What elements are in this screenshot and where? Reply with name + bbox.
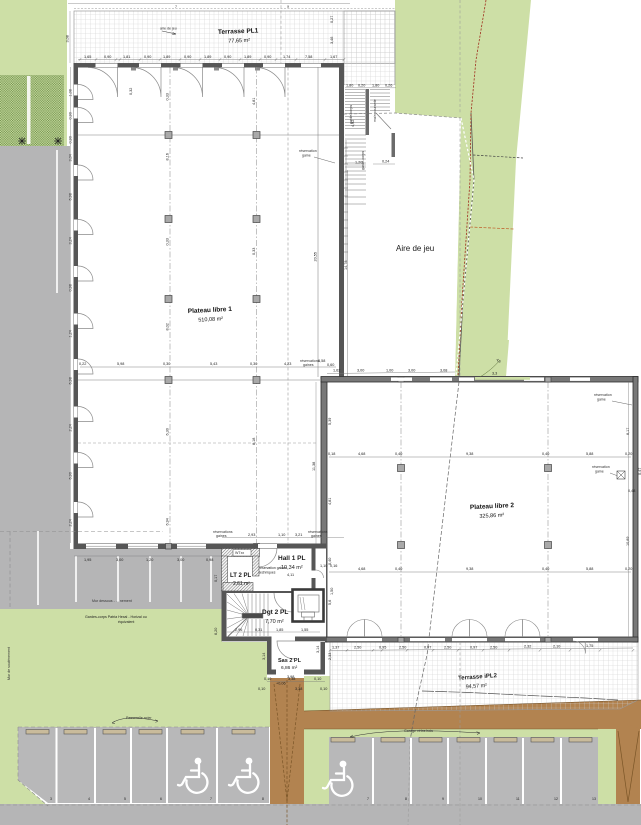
svg-text:4,81: 4,81	[328, 498, 332, 505]
svg-text:0,24: 0,24	[382, 160, 389, 164]
svg-text:0,60: 0,60	[327, 363, 334, 367]
svg-text:3,08: 3,08	[440, 369, 447, 373]
svg-text:0,90: 0,90	[104, 55, 111, 59]
svg-text:Mur dessous - ... nement: Mur dessous - ... nement	[92, 599, 132, 603]
svg-text:3: 3	[50, 797, 52, 801]
svg-text:0,90: 0,90	[184, 55, 191, 59]
svg-text:1,10: 1,10	[320, 564, 327, 568]
svg-text:0,40: 0,40	[542, 567, 549, 571]
svg-text:0,40: 0,40	[395, 452, 402, 456]
svg-text:13: 13	[592, 797, 596, 801]
svg-text:10: 10	[478, 797, 482, 801]
svg-text:3,3: 3,3	[492, 372, 497, 376]
svg-text:6,86 m²: 6,86 m²	[281, 665, 298, 671]
svg-text:2,50: 2,50	[399, 646, 406, 650]
svg-text:3,08: 3,08	[66, 35, 70, 42]
svg-text:11: 11	[516, 797, 520, 801]
svg-text:14,78: 14,78	[344, 260, 348, 270]
svg-text:5,43: 5,43	[210, 362, 217, 366]
svg-text:1,50: 1,50	[330, 588, 334, 595]
svg-text:0,97: 0,97	[424, 646, 431, 650]
svg-text:4,52: 4,52	[351, 120, 355, 127]
svg-text:0,98: 0,98	[206, 558, 213, 562]
svg-text:11,38: 11,38	[312, 462, 316, 471]
svg-text:6,94: 6,94	[166, 518, 170, 525]
svg-text:1,80: 1,80	[346, 84, 353, 88]
svg-text:Hall 1 PL: Hall 1 PL	[278, 555, 305, 562]
svg-text:1,00: 1,00	[386, 369, 393, 373]
svg-text:3,00: 3,00	[357, 369, 364, 373]
svg-text:0,30: 0,30	[163, 362, 170, 366]
svg-text:1,81: 1,81	[123, 55, 130, 59]
svg-text:1,89: 1,89	[163, 55, 170, 59]
svg-text:3,21: 3,21	[295, 533, 302, 537]
svg-text:équivalent: équivalent	[118, 620, 134, 624]
svg-text:0,10: 0,10	[258, 687, 265, 691]
svg-text:aire de jeu: aire de jeu	[160, 27, 177, 31]
svg-text:5: 5	[124, 797, 126, 801]
svg-text:7: 7	[175, 5, 177, 9]
svg-text:techniques: techniques	[259, 571, 276, 575]
svg-text:6,20: 6,20	[214, 628, 218, 635]
svg-text:0,27: 0,27	[330, 16, 334, 23]
svg-text:1,55: 1,55	[301, 628, 308, 632]
svg-text:LT 2 PL: LT 2 PL	[230, 573, 252, 579]
svg-text:Sas 2 PL: Sas 2 PL	[278, 658, 302, 664]
svg-text:9,38: 9,38	[466, 452, 473, 456]
svg-text:1,65: 1,65	[84, 55, 91, 59]
svg-text:gaine: gaine	[302, 154, 311, 158]
svg-text:1,74: 1,74	[283, 55, 290, 59]
svg-text:4: 4	[88, 797, 90, 801]
svg-text:9: 9	[442, 797, 444, 801]
svg-text:main courante: main courante	[373, 99, 377, 122]
svg-text:20,55: 20,55	[314, 252, 318, 262]
svg-text:réservation: réservation	[592, 465, 610, 469]
svg-text:gaines: gaines	[303, 363, 314, 367]
svg-text:4,68: 4,68	[358, 452, 365, 456]
svg-text:1,20: 1,20	[355, 161, 362, 165]
svg-text:0,20: 0,20	[358, 84, 365, 88]
svg-text:1,80: 1,80	[372, 84, 379, 88]
svg-text:0,33: 0,33	[166, 238, 170, 245]
svg-text:2,33: 2,33	[328, 653, 332, 660]
svg-text:0,40: 0,40	[542, 452, 549, 456]
svg-text:0,26: 0,26	[385, 84, 392, 88]
svg-text:3,00: 3,00	[177, 558, 184, 562]
svg-text:1,10: 1,10	[278, 533, 285, 537]
svg-text:5,88: 5,88	[586, 452, 593, 456]
svg-text:WTxx: WTxx	[235, 551, 244, 555]
svg-text:0,30: 0,30	[250, 362, 257, 366]
svg-text:4,68: 4,68	[358, 567, 365, 571]
svg-text:1,75: 1,75	[586, 644, 593, 648]
svg-text:8,02: 8,02	[166, 323, 170, 330]
svg-text:8: 8	[405, 797, 407, 801]
svg-text:77,65 m²: 77,65 m²	[228, 38, 250, 45]
svg-text:0,17: 0,17	[214, 575, 218, 582]
svg-text:2,96: 2,96	[235, 628, 242, 632]
svg-text:a: a	[287, 5, 289, 9]
svg-text:0,16: 0,16	[330, 564, 337, 568]
svg-text:0,90: 0,90	[224, 55, 231, 59]
svg-text:5,6: 5,6	[328, 600, 332, 605]
svg-text:9,38: 9,38	[466, 567, 473, 571]
svg-text:1,89: 1,89	[204, 55, 211, 59]
svg-text:2,32: 2,32	[524, 645, 531, 649]
svg-text:6,30: 6,30	[166, 428, 170, 435]
svg-text:5,88: 5,88	[586, 567, 593, 571]
svg-text:1,62: 1,62	[333, 369, 340, 373]
svg-text:8,17: 8,17	[626, 428, 630, 435]
svg-text:5,98: 5,98	[117, 362, 124, 366]
svg-text:Dgt 2 PL: Dgt 2 PL	[262, 609, 288, 616]
svg-text:0,97: 0,97	[470, 646, 477, 650]
svg-text:4,23: 4,23	[284, 362, 291, 366]
svg-text:1,95: 1,95	[84, 558, 91, 562]
svg-text:0,33: 0,33	[252, 248, 256, 255]
svg-text:Terrasse PL1: Terrasse PL1	[218, 28, 259, 36]
svg-text:+0,06: +0,06	[276, 682, 286, 686]
svg-text:Gardes-corps Patria Hexal - Ho: Gardes-corps Patria Hexal - Horizal ou	[85, 615, 147, 619]
svg-text:8,16: 8,16	[166, 153, 170, 160]
svg-text:7,70 m²: 7,70 m²	[265, 619, 284, 625]
svg-text:gaines: gaines	[216, 534, 227, 538]
svg-text:3,00: 3,00	[408, 369, 415, 373]
svg-text:2,50: 2,50	[490, 646, 497, 650]
svg-text:1,89: 1,89	[244, 55, 251, 59]
svg-text:2,61 m²: 2,61 m²	[233, 581, 250, 587]
svg-text:3,46: 3,46	[330, 37, 334, 44]
svg-text:0,48: 0,48	[628, 489, 635, 493]
svg-text:2,50: 2,50	[444, 646, 451, 650]
svg-text:1,37: 1,37	[332, 646, 339, 650]
svg-text:0,31: 0,31	[255, 628, 262, 632]
svg-text:3,14: 3,14	[316, 646, 320, 653]
svg-text:Mur de soutènement: Mur de soutènement	[7, 647, 11, 680]
svg-text:5,39: 5,39	[328, 418, 332, 425]
svg-text:gaine: gaine	[595, 470, 604, 474]
svg-text:7,58: 7,58	[305, 55, 312, 59]
svg-text:6: 6	[160, 797, 162, 801]
svg-text:7: 7	[367, 797, 369, 801]
svg-text:Aire de jeu: Aire de jeu	[396, 244, 434, 253]
svg-text:2,50: 2,50	[354, 646, 361, 650]
svg-text:2,10: 2,10	[553, 645, 560, 649]
svg-text:10,89: 10,89	[626, 536, 630, 546]
svg-text:gaine: gaine	[597, 398, 606, 402]
svg-text:0,10: 0,10	[314, 677, 321, 681]
svg-text:0,90: 0,90	[264, 55, 271, 59]
svg-text:0,32: 0,32	[129, 88, 133, 95]
svg-text:0,22: 0,22	[79, 362, 86, 366]
svg-text:1,20: 1,20	[146, 558, 153, 562]
svg-text:3,14: 3,14	[262, 653, 266, 660]
svg-text:0,33: 0,33	[166, 93, 170, 100]
svg-text:2,93: 2,93	[248, 533, 255, 537]
svg-text:gaines: gaines	[311, 534, 322, 538]
svg-text:7: 7	[210, 797, 212, 801]
svg-text:8,18: 8,18	[252, 438, 256, 445]
svg-text:0,18: 0,18	[328, 452, 335, 456]
svg-text:réservation: réservation	[299, 149, 317, 153]
svg-text:0,10: 0,10	[264, 677, 271, 681]
svg-text:3,00: 3,00	[116, 558, 123, 562]
svg-text:1,85: 1,85	[276, 628, 283, 632]
svg-text:10,34 m²: 10,34 m²	[281, 565, 303, 571]
svg-text:1,67: 1,67	[330, 55, 337, 59]
svg-text:réservation: réservation	[594, 393, 612, 397]
svg-text:3,38: 3,38	[288, 677, 295, 681]
svg-text:0,58: 0,58	[318, 359, 325, 363]
svg-text:8: 8	[262, 797, 264, 801]
svg-text:12: 12	[554, 797, 558, 801]
svg-text:0,40: 0,40	[395, 567, 402, 571]
svg-text:0,10: 0,10	[320, 687, 327, 691]
svg-text:4,11: 4,11	[287, 573, 294, 577]
svg-text:4,81: 4,81	[252, 98, 256, 105]
svg-text:0,95: 0,95	[379, 646, 386, 650]
svg-text:0,90: 0,90	[144, 55, 151, 59]
svg-text:3,38: 3,38	[295, 687, 302, 691]
